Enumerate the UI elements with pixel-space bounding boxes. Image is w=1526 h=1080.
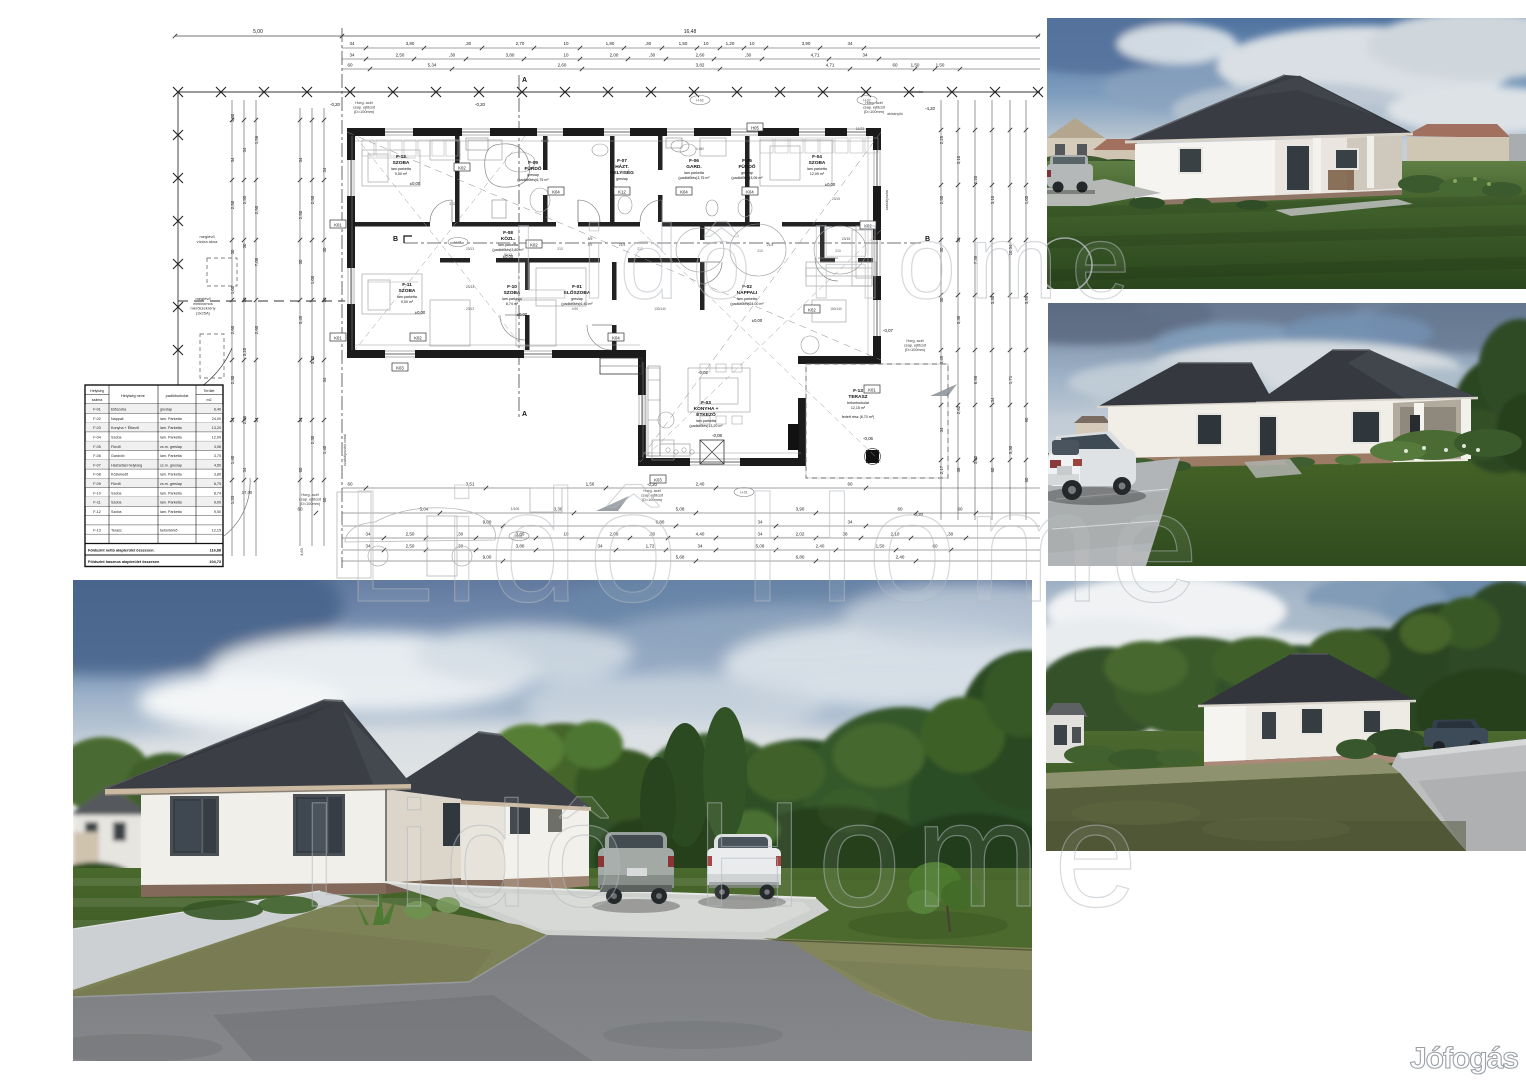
svg-text:Jófogás: Jófogás (1410, 1042, 1518, 1075)
svg-text:K02: K02 (458, 166, 466, 171)
svg-text:12,15: 12,15 (212, 529, 221, 533)
svg-text:F-09: F-09 (93, 482, 101, 486)
svg-text:csap. ejtőcső: csap. ejtőcső (353, 106, 375, 110)
svg-text:Szoba: Szoba (111, 510, 122, 514)
svg-text:F-04: F-04 (93, 436, 101, 440)
svg-text:13,20: 13,20 (212, 426, 221, 430)
svg-text:csap. ejtőcső: csap. ejtőcső (904, 344, 926, 348)
svg-text:F-02: F-02 (93, 417, 101, 421)
svg-text:greslap: greslap (741, 171, 753, 175)
svg-text:10: 10 (703, 41, 709, 46)
svg-text:K04: K04 (746, 190, 754, 195)
svg-text:lam.parketta: lam.parketta (397, 295, 417, 299)
svg-text:lam. Parketta: lam. Parketta (160, 501, 183, 505)
svg-text:2,60: 2,60 (558, 63, 567, 68)
svg-text:4,71: 4,71 (811, 53, 820, 58)
svg-text:3,82: 3,82 (696, 63, 705, 68)
svg-text:2,50: 2,50 (298, 210, 303, 219)
svg-text:104,73: 104,73 (209, 560, 221, 564)
svg-text:Helyiség neve: Helyiség neve (121, 394, 145, 398)
svg-text:csap. ejtőcső: csap. ejtőcső (863, 106, 885, 110)
svg-text:2,50: 2,50 (396, 53, 405, 58)
svg-text:Lidô Home: Lidô Home (510, 204, 1144, 321)
svg-text:(D=100mm): (D=100mm) (905, 348, 926, 352)
svg-text:34: 34 (349, 53, 355, 58)
svg-text:1,56: 1,56 (254, 135, 259, 144)
svg-text:Előszoba: Előszoba (111, 408, 127, 412)
svg-text:Terület: Terület (204, 389, 215, 393)
svg-text:K04: K04 (680, 190, 688, 195)
svg-text:A: A (522, 411, 527, 418)
svg-text:Földszint hasznos alapterület: Földszint hasznos alapterület összesen (88, 560, 160, 564)
svg-text:K01: K01 (334, 223, 342, 228)
svg-text:SZOBA: SZOBA (809, 160, 826, 166)
svg-text:1,50: 1,50 (679, 41, 688, 46)
svg-text:h.180: h.180 (696, 147, 704, 151)
svg-text:B: B (393, 236, 398, 243)
svg-text:2,50: 2,50 (242, 195, 247, 204)
svg-text:±0,00: ±0,00 (410, 181, 421, 186)
svg-text:(padlófűtés)3,06 m²: (padlófűtés)3,06 m² (731, 176, 763, 180)
svg-text:lam. Parketta: lam. Parketta (160, 491, 183, 495)
svg-text:2,50: 2,50 (939, 195, 944, 204)
svg-text:,30: ,30 (745, 53, 752, 58)
svg-text:5,34: 5,34 (428, 63, 437, 68)
svg-text:10: 10 (749, 41, 755, 46)
svg-text:H05: H05 (751, 126, 759, 131)
svg-text:vízóra akna: vízóra akna (197, 239, 218, 244)
svg-text:K01: K01 (868, 388, 876, 393)
svg-text:Lidô Home: Lidô Home (345, 456, 1209, 635)
svg-text:9,50 m²: 9,50 m² (395, 172, 408, 176)
svg-text:F-03: F-03 (93, 426, 101, 430)
svg-text:60: 60 (297, 507, 303, 512)
svg-text:A: A (522, 77, 527, 84)
svg-text:34: 34 (230, 157, 235, 162)
svg-text:1,40: 1,40 (322, 445, 327, 454)
svg-text:betonburkolat: betonburkolat (847, 401, 869, 405)
svg-text:1,00: 1,00 (230, 285, 235, 294)
svg-text:száma: száma (92, 398, 103, 402)
svg-text:12,09 m²: 12,09 m² (810, 172, 825, 176)
svg-text:10: 10 (563, 41, 569, 46)
svg-text:F-12: F-12 (93, 510, 101, 514)
svg-text:5,00: 5,00 (253, 29, 263, 35)
svg-text:cs.m. greslap: cs.m. greslap (160, 482, 182, 486)
svg-text:lam.parketta: lam.parketta (391, 167, 411, 171)
svg-text:F-01: F-01 (93, 408, 101, 412)
svg-text:(padlófűtés)6,75 m²: (padlófűtés)6,75 m² (517, 178, 549, 182)
svg-text:Gardrób: Gardrób (111, 454, 125, 458)
svg-text:Fürdő: Fürdő (111, 482, 121, 486)
svg-text:K04: K04 (552, 190, 560, 195)
svg-text:3,20: 3,20 (242, 347, 247, 356)
svg-text:9,00 m²: 9,00 m² (401, 300, 414, 304)
svg-text:34: 34 (847, 41, 853, 46)
svg-text:cs.m. greslap: cs.m. greslap (160, 463, 182, 467)
svg-text:KONYHA +: KONYHA + (694, 406, 719, 412)
svg-text:2,30: 2,30 (230, 375, 235, 384)
svg-text:60: 60 (892, 63, 898, 68)
svg-text:K02: K02 (414, 336, 422, 341)
svg-text:30: 30 (242, 243, 247, 248)
svg-text:SZOBA: SZOBA (399, 288, 416, 294)
svg-text:F-06: F-06 (93, 454, 101, 458)
svg-text:3,30: 3,30 (1008, 445, 1013, 454)
svg-text:12,09: 12,09 (212, 436, 221, 440)
svg-text:23/13: 23/13 (466, 307, 474, 311)
svg-text:3,90: 3,90 (802, 41, 811, 46)
svg-text:(3x25A): (3x25A) (196, 310, 211, 315)
svg-text:3,45: 3,45 (939, 355, 944, 364)
svg-text:lam.parketta: lam.parketta (684, 171, 704, 175)
svg-text:,30: ,30 (465, 41, 472, 46)
svg-text:3,80: 3,80 (506, 53, 515, 58)
svg-text:F-12: F-12 (396, 154, 406, 160)
svg-text:3,10: 3,10 (956, 155, 961, 164)
svg-text:HÁZT.: HÁZT. (615, 163, 629, 170)
svg-text:K04: K04 (612, 336, 620, 341)
svg-text:-4,20: -4,20 (925, 106, 936, 111)
svg-text:±0,00: ±0,00 (825, 182, 836, 187)
svg-text:4,60: 4,60 (299, 547, 304, 556)
svg-text:greslap: greslap (616, 177, 628, 181)
svg-text:-0,08: -0,08 (712, 433, 723, 438)
svg-text:16,48: 16,48 (684, 29, 697, 35)
svg-text:eleknutár: eleknutár (909, 90, 924, 94)
svg-text:greslap: greslap (160, 408, 172, 412)
svg-text:Terasz: Terasz (111, 529, 122, 533)
svg-text:Horg. acél: Horg. acél (906, 339, 923, 343)
svg-text:F-07: F-07 (617, 158, 627, 164)
svg-text:F-10: F-10 (93, 491, 101, 495)
svg-text:1,71: 1,71 (1008, 375, 1013, 384)
svg-text:3,10: 3,10 (990, 195, 995, 204)
svg-text:34: 34 (939, 427, 944, 432)
svg-text:-0,07: -0,07 (883, 328, 894, 333)
svg-text:FÜRDŐ: FÜRDŐ (524, 165, 541, 172)
svg-text:1,50: 1,50 (911, 63, 920, 68)
svg-text:2,00: 2,00 (610, 53, 619, 58)
svg-text:1,20: 1,20 (726, 41, 735, 46)
svg-text:9,00: 9,00 (214, 501, 221, 505)
svg-text:2,50: 2,50 (230, 200, 235, 209)
svg-text:90: 90 (1024, 417, 1029, 422)
svg-text:23/13: 23/13 (466, 247, 474, 251)
svg-text:H-02: H-02 (696, 99, 703, 103)
svg-text:Közlekedő: Közlekedő (111, 473, 128, 477)
svg-text:34: 34 (242, 467, 247, 472)
svg-text:F-06: F-06 (689, 158, 699, 164)
svg-text:2,70: 2,70 (516, 41, 525, 46)
svg-text:±0,00: ±0,00 (415, 310, 426, 315)
svg-text:Szoba: Szoba (111, 501, 122, 505)
svg-text:34: 34 (349, 41, 355, 46)
svg-text:F-03: F-03 (701, 400, 711, 406)
svg-text:Konyha + Étkező: Konyha + Étkező (111, 425, 139, 430)
svg-text:1,33: 1,33 (230, 495, 235, 504)
svg-text:-0,20: -0,20 (330, 102, 341, 107)
svg-text:60: 60 (298, 467, 303, 472)
svg-text:23/15: 23/15 (832, 197, 840, 201)
svg-text:F-13: F-13 (853, 388, 863, 394)
svg-text:1,00: 1,00 (310, 275, 315, 284)
svg-text:GARD.: GARD. (686, 164, 701, 170)
svg-text:Földszint nettó alapterület ös: Földszint nettó alapterület összesen: (88, 549, 155, 553)
svg-text:H-01: H-01 (454, 241, 461, 245)
svg-text:6,40: 6,40 (214, 408, 221, 412)
svg-text:Horg. acél: Horg. acél (301, 493, 318, 497)
svg-text:2,50: 2,50 (310, 195, 315, 204)
svg-text:4,50: 4,50 (214, 463, 221, 467)
svg-text:2,30: 2,30 (310, 435, 315, 444)
svg-text:30: 30 (322, 247, 327, 252)
svg-text:F-13: F-13 (93, 529, 101, 533)
svg-text:K03: K03 (396, 366, 404, 371)
svg-text:2,60: 2,60 (254, 325, 259, 334)
svg-text:padlóburkolat: padlóburkolat (166, 394, 190, 398)
svg-text:lam.parketta: lam.parketta (807, 167, 827, 171)
svg-text:3,80: 3,80 (406, 41, 415, 46)
svg-text:2,25: 2,25 (939, 135, 944, 144)
svg-text:3,45: 3,45 (298, 315, 303, 324)
svg-text:TERASZ: TERASZ (848, 394, 867, 400)
svg-text:60: 60 (322, 497, 327, 502)
svg-text:-0,02: -0,02 (698, 370, 709, 375)
svg-text:FÜRDŐ: FÜRDŐ (738, 163, 755, 170)
svg-text:10: 10 (563, 53, 569, 58)
svg-text:Szoba: Szoba (111, 436, 122, 440)
svg-text:(D=100mm): (D=100mm) (864, 110, 885, 114)
svg-text:3,80: 3,80 (214, 473, 221, 477)
svg-text:(padlófűtés)13,20 m²: (padlófűtés)13,20 m² (689, 424, 723, 428)
svg-text:F-07: F-07 (93, 463, 101, 467)
svg-text:Szoba: Szoba (111, 491, 122, 495)
svg-text:8,74: 8,74 (214, 491, 221, 495)
svg-text:Horg. acél: Horg. acél (355, 101, 372, 105)
svg-text:11/23: 11/23 (856, 127, 864, 131)
svg-text:F-11: F-11 (93, 501, 100, 505)
svg-text:lam. Parketta: lam. Parketta (160, 510, 183, 514)
svg-text:F-04: F-04 (812, 154, 822, 160)
svg-text:3,75: 3,75 (214, 454, 221, 458)
svg-text:2,20: 2,20 (973, 175, 978, 184)
svg-text:cs.m. greslap: cs.m. greslap (160, 445, 182, 449)
svg-text:34: 34 (242, 147, 247, 152)
svg-text:F-05: F-05 (742, 158, 752, 164)
svg-text:lam.parketta: lam.parketta (696, 419, 716, 423)
svg-text:,30: ,30 (449, 53, 456, 58)
svg-text:34: 34 (322, 377, 327, 382)
svg-text:Fürdő: Fürdő (111, 445, 121, 449)
svg-text:SZOBA: SZOBA (393, 160, 410, 166)
svg-text:lam. Parketta: lam. Parketta (160, 473, 183, 477)
svg-text:34: 34 (862, 53, 868, 58)
svg-text:Lidô Home: Lidô Home (300, 770, 1151, 938)
svg-text:2,60: 2,60 (230, 325, 235, 334)
svg-text:,30: ,30 (645, 41, 652, 46)
svg-text:12,15 m²: 12,15 m² (851, 406, 866, 410)
svg-text:60: 60 (347, 63, 353, 68)
svg-text:fedett rész (8,70 m²): fedett rész (8,70 m²) (842, 415, 874, 419)
svg-text:betontérkő: betontérkő (160, 529, 177, 533)
svg-text:greslap: greslap (527, 173, 539, 177)
svg-text:F-11: F-11 (402, 282, 412, 288)
svg-text:(D=100mm): (D=100mm) (300, 502, 321, 506)
svg-text:34: 34 (298, 157, 303, 162)
svg-text:24,00: 24,00 (212, 417, 221, 421)
svg-text:30: 30 (298, 259, 303, 264)
svg-text:2,50: 2,50 (254, 205, 259, 214)
svg-text:-0,06: -0,06 (863, 436, 874, 441)
svg-text:F-05: F-05 (93, 445, 101, 449)
svg-text:9,50: 9,50 (214, 510, 221, 514)
svg-text:h.180: h.180 (541, 139, 549, 143)
svg-text:1,40: 1,40 (230, 455, 235, 464)
svg-text:ablaknyitó: ablaknyitó (887, 112, 903, 116)
svg-text:K12: K12 (618, 190, 626, 195)
svg-text:6,98: 6,98 (973, 375, 978, 384)
svg-text:23/13: 23/13 (466, 285, 475, 289)
svg-text:F-08: F-08 (93, 473, 101, 477)
svg-text:m2: m2 (207, 398, 212, 402)
svg-text:K01: K01 (334, 336, 342, 341)
svg-text:-0,20: -0,20 (475, 102, 486, 107)
svg-text:lam. Parketta: lam. Parketta (160, 417, 183, 421)
svg-text:lam. Parketta: lam. Parketta (160, 436, 183, 440)
svg-text:Háztartási helyiség: Háztartási helyiség (111, 463, 142, 467)
svg-text:lam. Parketta: lam. Parketta (160, 454, 183, 458)
svg-text:34: 34 (322, 167, 327, 172)
svg-text:lam. Parketta: lam. Parketta (160, 426, 183, 430)
svg-text:Nappali: Nappali (111, 417, 124, 421)
svg-text:34: 34 (990, 397, 995, 402)
svg-text:Helyiség: Helyiség (90, 389, 104, 393)
svg-text:2,60: 2,60 (696, 53, 705, 58)
svg-text:17,00: 17,00 (242, 490, 253, 495)
svg-text:116,88: 116,88 (210, 549, 221, 553)
svg-text:1,50: 1,50 (936, 63, 945, 68)
svg-text:1,00: 1,00 (1024, 195, 1029, 204)
svg-text:1,80: 1,80 (606, 41, 615, 46)
svg-text:6,75: 6,75 (214, 482, 221, 486)
svg-text:csap. ejtőcső: csap. ejtőcső (299, 498, 321, 502)
svg-text:3,06: 3,06 (214, 445, 221, 449)
svg-text:30: 30 (230, 249, 235, 254)
svg-text:F-09: F-09 (528, 160, 538, 166)
svg-text:,30: ,30 (649, 53, 656, 58)
svg-text:(D=100mm): (D=100mm) (354, 110, 375, 114)
svg-text:7,08: 7,08 (254, 257, 259, 266)
svg-text:H-02: H-02 (863, 99, 870, 103)
svg-text:4,71: 4,71 (826, 63, 835, 68)
svg-text:(padlófűtés)3,75 m²: (padlófűtés)3,75 m² (678, 176, 710, 180)
